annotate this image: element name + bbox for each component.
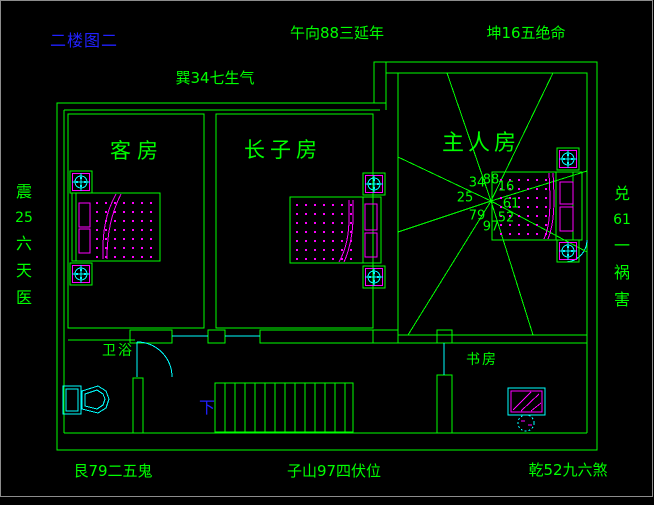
ceiling-lamp-icon: [363, 266, 385, 288]
staircase: [215, 383, 353, 432]
room-label-master: 主人房: [442, 132, 520, 156]
wall-segment: [208, 330, 225, 343]
wall-segment: [130, 330, 172, 343]
label-direction-bottom-center: 子山97四伏位: [287, 463, 381, 480]
room-label-bathroom: 卫浴: [102, 344, 134, 359]
wall-segment: [373, 330, 398, 343]
study-wall-stub: [437, 375, 452, 433]
room-label-eldest-son: 长子房: [244, 139, 322, 162]
label-direction-top-center: 午向88三延年: [290, 25, 384, 42]
page-title: 二楼图二: [50, 32, 118, 50]
guest-bed: [72, 193, 160, 261]
window-frame: [1, 1, 653, 497]
label-direction-bottom-right: 乾52九六煞: [528, 462, 607, 479]
ceiling-lamp-icon: [70, 263, 92, 285]
palace-number: 52: [498, 212, 515, 225]
palace-number: 61: [503, 198, 520, 211]
ceiling-lamp-icon: [363, 173, 385, 195]
room-label-guest: 客房: [110, 140, 164, 163]
room-label-study: 书房: [466, 353, 498, 368]
label-direction-right: 兑61一祸害: [609, 186, 635, 308]
wall-segment: [260, 330, 373, 343]
stool-icon: [518, 415, 534, 431]
palace-number: 25: [457, 192, 474, 205]
toilet-icon: [63, 386, 109, 414]
label-direction-upper-left: 巽34七生气: [175, 70, 254, 87]
bathroom-wall-stub: [133, 378, 143, 433]
palace-number: 16: [498, 181, 515, 194]
stairs-down-label: 下: [199, 399, 215, 417]
label-direction-top-right: 坤16五绝命: [486, 25, 565, 42]
label-direction-left: 震25六天医: [11, 184, 37, 306]
eldest-son-bed: [290, 197, 381, 263]
wall-segment: [437, 330, 452, 343]
ceiling-lamp-icon: [557, 148, 579, 170]
floorplan-canvas[interactable]: [0, 0, 654, 505]
outer-wall: [57, 62, 597, 450]
bathroom-door-arc: [137, 342, 172, 377]
cad-floorplan-window: 二楼图二 午向88三延年 坤16五绝命 巽34七生气 震25六天医 兑61一祸害…: [0, 0, 654, 505]
ceiling-lamp-icon: [70, 171, 92, 193]
label-direction-bottom-left: 艮79二五鬼: [73, 463, 152, 480]
monitor-icon: [508, 388, 545, 415]
ceiling-lamp-icon: [557, 240, 579, 262]
